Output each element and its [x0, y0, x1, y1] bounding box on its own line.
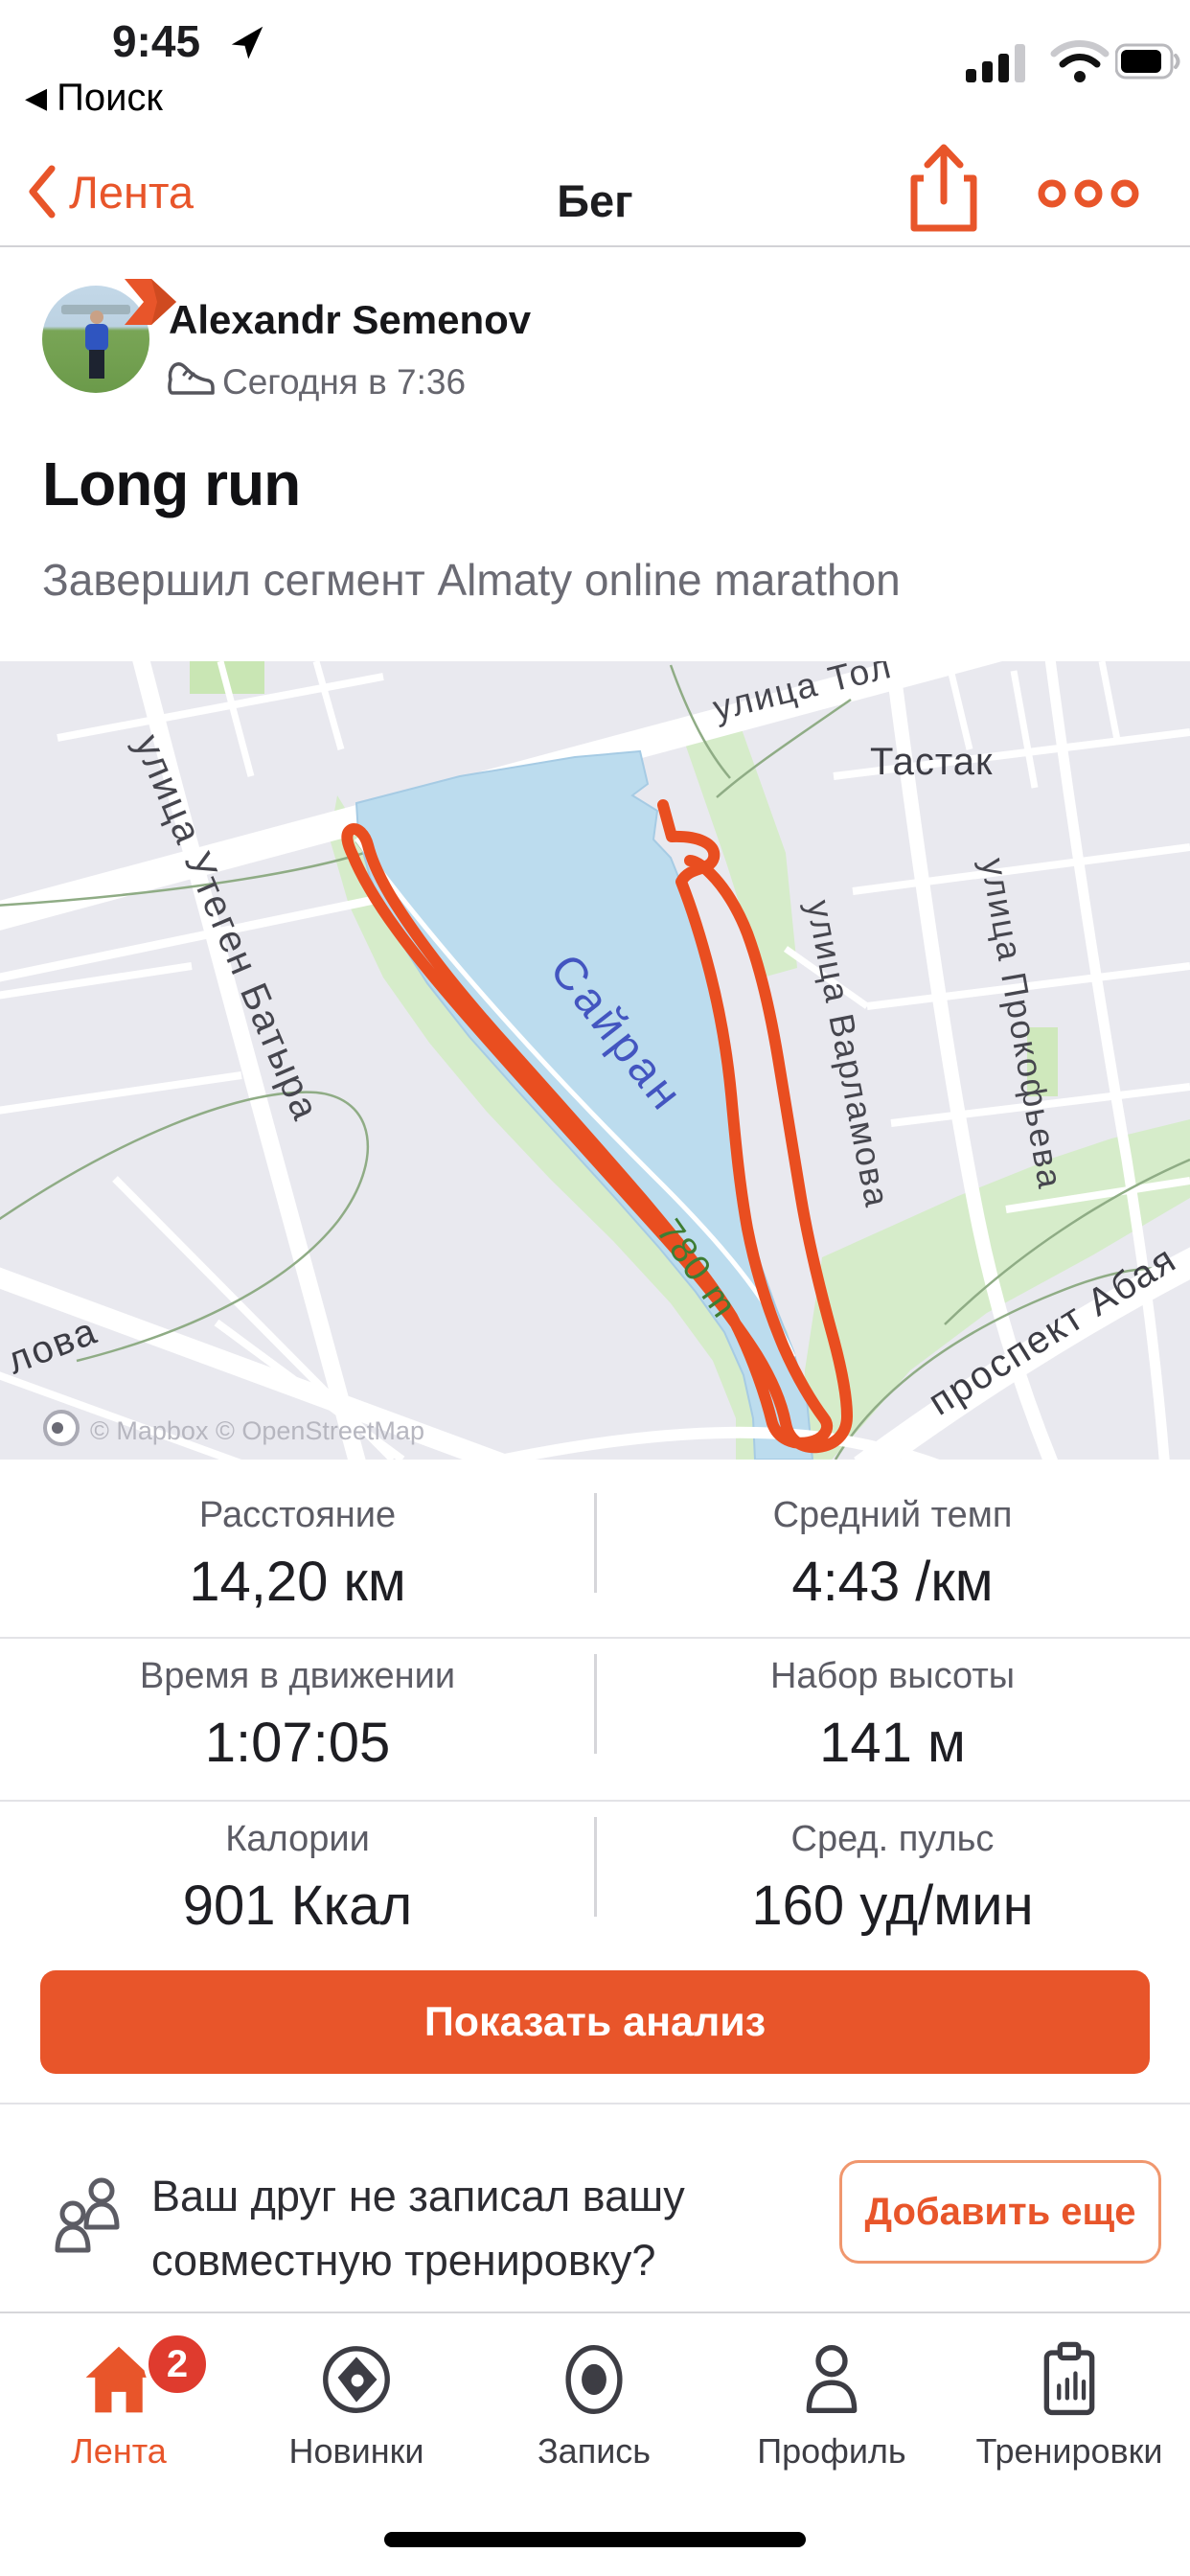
compass-icon	[315, 2338, 398, 2421]
record-icon	[553, 2338, 635, 2421]
group-athletes-icon	[46, 2173, 134, 2256]
back-to-search-link[interactable]: ◀ Поиск	[25, 77, 163, 120]
author-name[interactable]: Alexandr Semenov	[169, 297, 531, 343]
tab-record[interactable]: Запись	[475, 2338, 713, 2472]
show-analysis-button[interactable]: Показать анализ	[40, 1970, 1150, 2074]
cellular-signal-icon	[962, 40, 1041, 84]
tab-news[interactable]: Новинки	[238, 2338, 475, 2472]
stat-avg-heart-rate: Сред. пульс 160 уд/мин	[595, 1819, 1190, 1938]
stat-avg-pace: Средний темп 4:43 /км	[595, 1495, 1190, 1614]
profile-icon	[790, 2338, 873, 2421]
more-options-button[interactable]	[1037, 172, 1140, 215]
activity-subtitle: Завершил сегмент Almaty online marathon	[42, 554, 901, 606]
stats-divider-v1	[594, 1493, 597, 1593]
tab-training[interactable]: Тренировки	[950, 2338, 1188, 2472]
stat-elevation-gain: Набор высоты 141 м	[595, 1656, 1190, 1775]
activity-title: Long run	[42, 448, 300, 519]
friend-prompt-text: Ваш друг не записал вашу совместную трен…	[151, 2164, 822, 2292]
location-arrow-icon	[228, 23, 266, 61]
training-clipboard-icon	[1028, 2338, 1110, 2421]
stat-calories: Калории 901 Ккал	[0, 1819, 595, 1938]
back-triangle-icon: ◀	[25, 81, 47, 115]
page-title: Бег	[0, 174, 1190, 227]
stats-divider-v2	[594, 1654, 597, 1754]
app-screen: 9:45 ◀ Поиск Лента Бег	[0, 0, 1190, 2576]
map-label-district: Тастак	[870, 741, 994, 783]
stats-divider-v3	[594, 1817, 597, 1917]
running-shoe-icon	[165, 358, 215, 401]
back-app-label: Поиск	[57, 77, 163, 120]
status-time: 9:45	[84, 15, 228, 67]
add-more-button[interactable]: Добавить еще	[839, 2160, 1161, 2264]
wifi-icon	[1050, 38, 1110, 84]
tab-profile[interactable]: Профиль	[713, 2338, 950, 2472]
stat-distance: Расстояние 14,20 км	[0, 1495, 595, 1614]
route-map[interactable]: улица Тол Тастак улица Утеген Батыра Сай…	[0, 661, 1190, 1460]
home-indicator[interactable]	[384, 2532, 806, 2547]
map-attribution: © Mapbox © OpenStreetMap	[90, 1416, 424, 1445]
battery-icon	[1115, 42, 1182, 82]
stat-moving-time: Время в движении 1:07:05	[0, 1656, 595, 1775]
share-button[interactable]	[906, 142, 981, 234]
feed-badge: 2	[144, 2331, 211, 2398]
activity-timestamp: Сегодня в 7:36	[222, 362, 466, 402]
